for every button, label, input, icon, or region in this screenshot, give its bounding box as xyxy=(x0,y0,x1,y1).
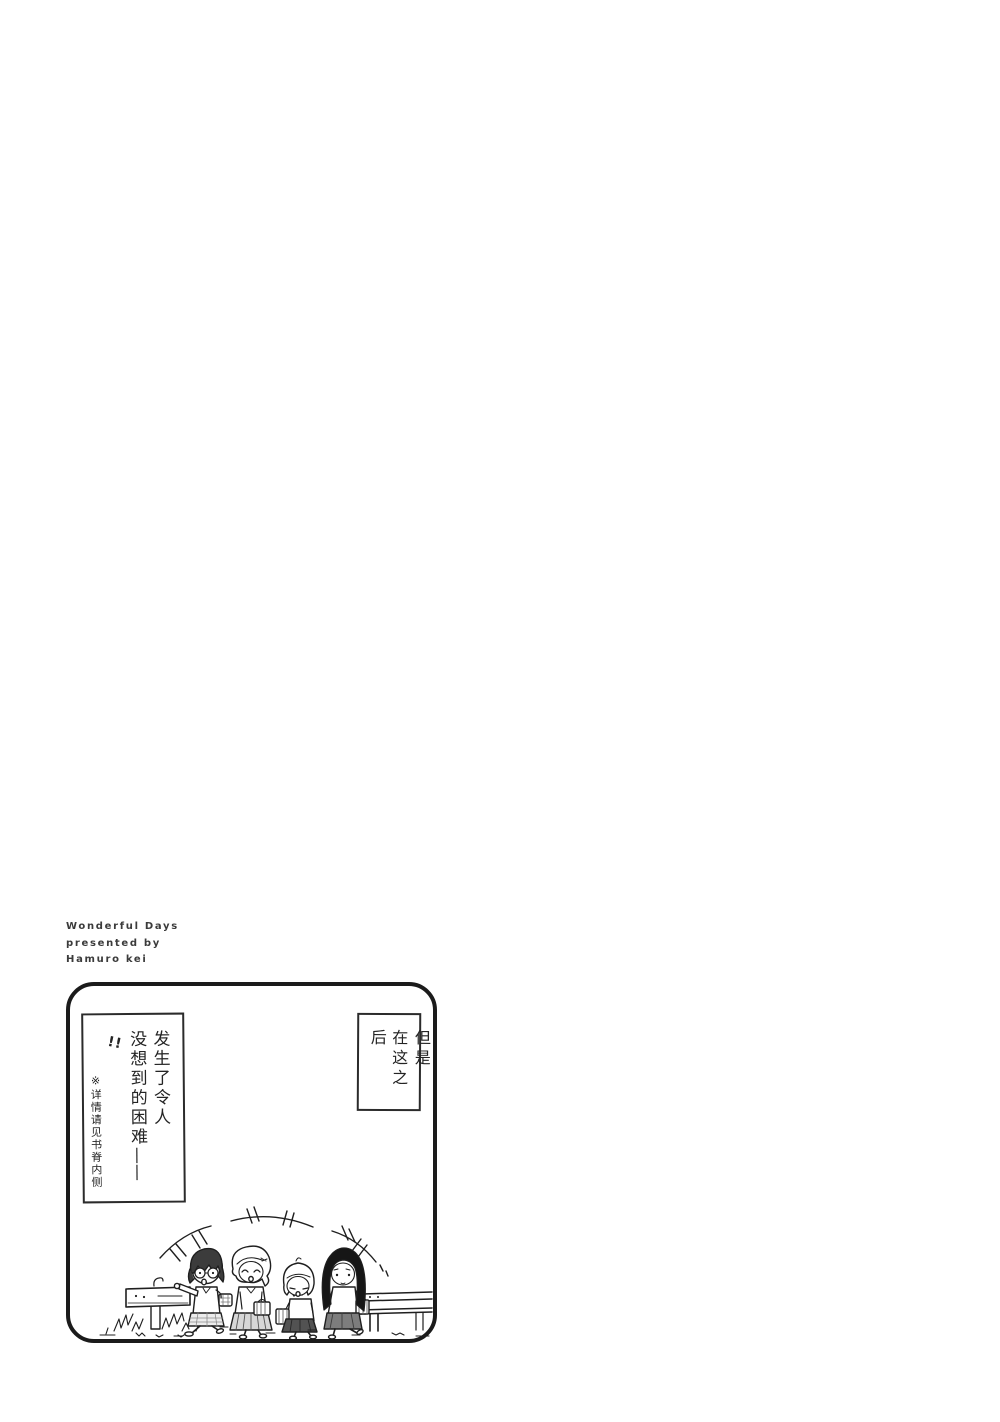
girl-4 xyxy=(322,1248,369,1339)
manga-panel: 发生了令人 没想到的困难——!! ※详情请见书脊内侧 但是 在这之后 xyxy=(66,982,437,1343)
credit-author: Hamuro kei xyxy=(66,952,179,969)
motion-arc-middle xyxy=(231,1207,313,1227)
girl-3 xyxy=(276,1258,317,1339)
girl-4-face xyxy=(332,1263,355,1285)
manga-bonus-page: { "colors": { "paper": "#ffffff", "ink":… xyxy=(0,0,1000,1422)
girl-4-skirt xyxy=(324,1313,362,1329)
exclamation-marks: !! xyxy=(106,1034,124,1054)
walking-girls-illustration xyxy=(70,1163,433,1339)
girl-2-bag xyxy=(254,1302,270,1315)
girl-1-skirt xyxy=(188,1313,224,1326)
caption-right-line1: 但是 xyxy=(410,1029,432,1103)
park-bench xyxy=(360,1292,432,1331)
credit-title: Wonderful Days xyxy=(66,919,179,936)
credit-presented-by: presented by xyxy=(66,936,179,953)
caption-right-line2: 在这之后 xyxy=(366,1029,410,1103)
girl-2 xyxy=(230,1246,272,1339)
caption-box-right: 但是 在这之后 xyxy=(357,1013,422,1111)
artist-credit: Wonderful Days presented by Hamuro kei xyxy=(66,919,179,969)
caption-right-text: 但是 在这之后 xyxy=(359,1015,442,1109)
